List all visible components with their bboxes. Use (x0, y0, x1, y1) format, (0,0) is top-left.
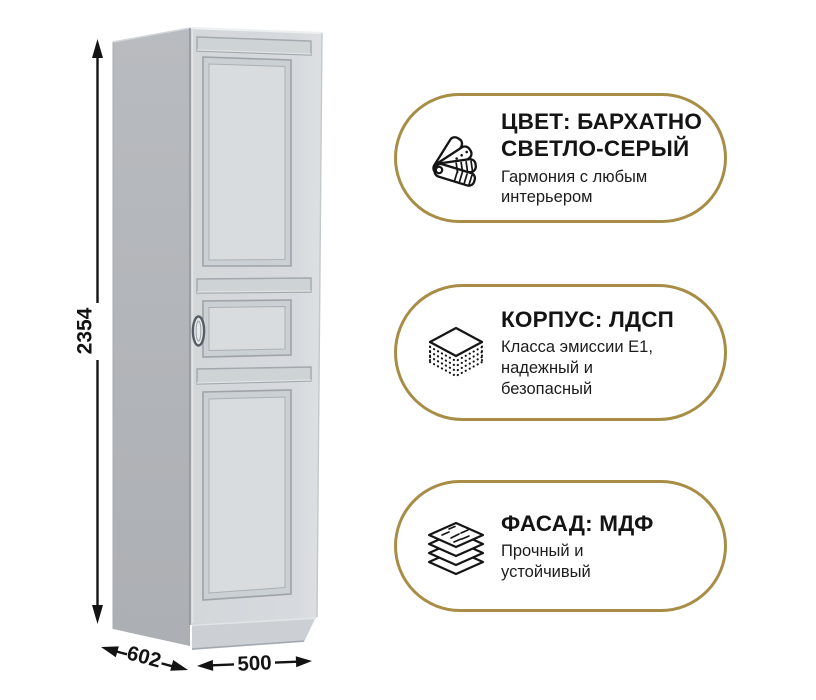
height-dimension: 2354 (74, 39, 104, 624)
feature-badge-body: КОРПУС: ЛДСП Класса эмиссии E1, надежный… (394, 284, 727, 421)
badge-subtitle: Гармония с любым интерьером (501, 167, 706, 209)
feature-badge-color: ЦВЕТ: БАРХАТНО СВЕТЛО-СЕРЫЙ Гармония с л… (394, 93, 727, 223)
width-dimension: 500 (197, 651, 312, 675)
door-panel-middle (203, 300, 291, 357)
door-panel-upper (203, 57, 291, 266)
door-panel-lower (203, 390, 291, 600)
badge-title: ЦВЕТ: БАРХАТНО СВЕТЛО-СЕРЫЙ (501, 108, 706, 163)
mdf-sheets-icon (424, 514, 488, 578)
depth-dimension: 602 (101, 641, 188, 672)
height-dimension-label: 2354 (74, 307, 97, 354)
color-swatches-icon (424, 126, 488, 190)
badge-title: КОРПУС: ЛДСП (501, 306, 706, 333)
wardrobe-door (190, 28, 322, 625)
wardrobe-illustration: 2354 602 500 (0, 0, 390, 700)
door-top-rail-strip (197, 37, 311, 55)
badge-subtitle: Класса эмиссии E1, надежный и безопасный (501, 337, 706, 399)
badge-title: ФАСАД: МДФ (501, 510, 706, 537)
chipboard-layers-icon (424, 321, 488, 385)
feature-badges: ЦВЕТ: БАРХАТНО СВЕТЛО-СЕРЫЙ Гармония с л… (394, 0, 728, 700)
badge-subtitle: Прочный и устойчивый (501, 541, 706, 583)
door-mid-rail-strip-1 (197, 278, 311, 293)
door-handle (193, 317, 204, 346)
door-mid-rail-strip-2 (197, 367, 311, 384)
wardrobe-side-panel (113, 28, 190, 646)
depth-dimension-label: 602 (124, 641, 163, 672)
feature-badge-facade: ФАСАД: МДФ Прочный и устойчивый (394, 480, 727, 612)
product-infographic: 2354 602 500 (0, 0, 816, 700)
width-dimension-label: 500 (237, 651, 272, 675)
